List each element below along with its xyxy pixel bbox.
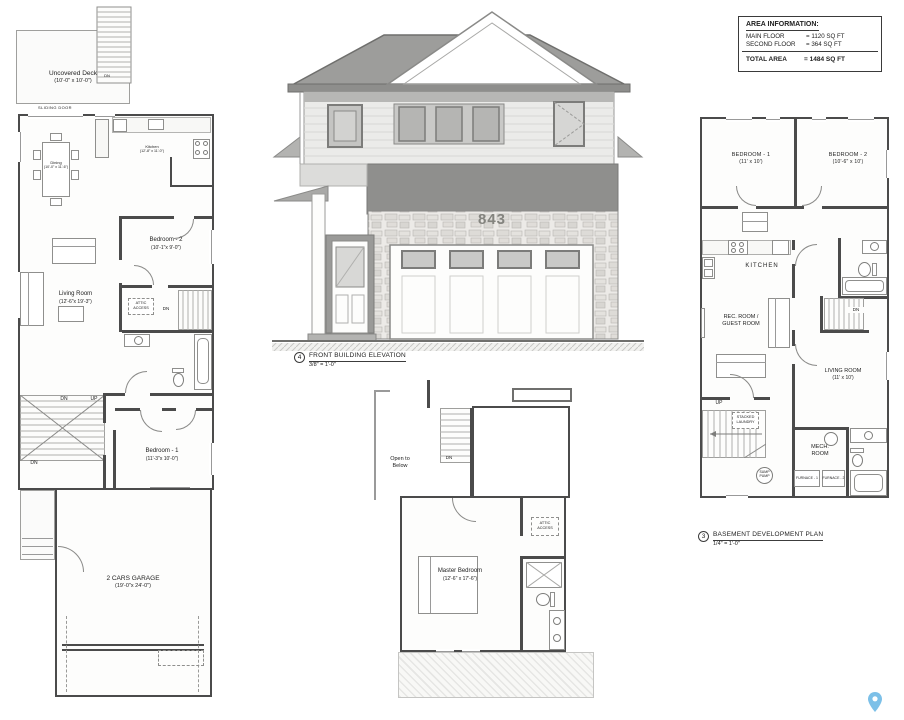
sofa-back-line: [52, 246, 96, 247]
bedroom1-label: Bedroom - 1 (11'-3"x 10'-0"): [113, 448, 211, 462]
kitchen-label: Kitchen (12'-8" x 11'-0"): [128, 144, 176, 153]
vanity: [549, 610, 565, 650]
toilet-bowl: [852, 454, 863, 467]
wall: [754, 397, 770, 400]
burner: [195, 150, 200, 155]
garage-door-track: [66, 616, 67, 692]
hall-dn-label: DN: [158, 306, 174, 312]
wall: [427, 380, 430, 408]
shower: [526, 562, 562, 588]
sofa-back-line: [716, 362, 766, 363]
house-number: 843: [470, 211, 514, 230]
front-elevation-drawing: [272, 5, 644, 351]
toilet-bowl: [536, 593, 550, 606]
basement-bedroom2-label: BEDROOM - 2 (10'-6" x 10'): [810, 152, 886, 165]
burner: [731, 248, 736, 253]
wall: [520, 496, 523, 536]
wall: [756, 206, 804, 209]
window: [726, 493, 748, 498]
master-dims: (12'-6" x 17'-6"): [408, 576, 512, 582]
map-pin-icon[interactable]: [868, 692, 882, 712]
bedroom2-label: Bedroom - 2 (10'-1"x 9'-0"): [120, 237, 212, 251]
bed-pillow-line: [430, 557, 431, 613]
wall: [794, 119, 797, 207]
sliding-door-label: SLIDING DOOR: [26, 105, 84, 110]
basement-dn-label: DN: [848, 307, 864, 313]
wall: [115, 408, 140, 411]
sofa: [768, 298, 790, 348]
laundry-line2: LAUNDRY: [732, 420, 759, 425]
master-bedroom-label: Master Bedroom (12'-6" x 17'-6"): [408, 568, 512, 582]
bathtub-inner: [854, 474, 883, 492]
wall: [170, 185, 212, 187]
toilet-bowl: [173, 373, 184, 387]
elevation-title: FRONT BUILDING ELEVATION: [309, 352, 406, 362]
bedroom2-name: BEDROOM - 2: [810, 152, 886, 159]
burner: [739, 242, 744, 247]
kitchen-island: [95, 119, 109, 158]
wall: [822, 206, 889, 209]
second-floor-dn-label: DN: [440, 455, 458, 461]
furnace-2-label: FURNACE - 2: [822, 476, 845, 480]
sump-line2: PUMP: [756, 474, 773, 478]
kitchen-sink: [148, 119, 164, 130]
bathtub-inner: [197, 338, 209, 384]
sofa: [716, 354, 766, 378]
toilet-tank: [872, 263, 877, 276]
burner: [739, 248, 744, 253]
area-row-second-label: SECOND FLOOR: [746, 41, 796, 49]
bedroom2-dims: (10'-1"x 9'-0"): [120, 245, 212, 251]
burner: [195, 141, 200, 146]
basement-plan-scale: 1/4" = 1'-0": [713, 541, 740, 548]
wall: [103, 455, 106, 490]
toilet-tank: [850, 448, 864, 453]
rec-line2: GUEST ROOM: [706, 321, 776, 328]
wall: [170, 157, 172, 187]
bedroom2-dims: (10'-6" x 10'): [810, 159, 886, 165]
wall: [792, 364, 795, 408]
attic-access-label-2f: ATTIC ACCESS: [531, 521, 559, 530]
kitchen-dims: (12'-8" x 11'-0"): [128, 149, 176, 153]
step-line: [22, 538, 53, 539]
window: [766, 117, 780, 122]
entry-steps: [20, 490, 55, 560]
stair-up-label: UP: [86, 396, 102, 402]
deck-stairs-dn-label: DN: [100, 73, 114, 78]
basement-plan-title: BASEMENT DEVELOPMENT PLAN: [713, 531, 823, 541]
stair-dn2-label: DN: [26, 460, 42, 466]
garage-dims: (19'-0"x 24'-0"): [74, 583, 192, 590]
area-row-main-label: MAIN FLOOR: [746, 33, 785, 41]
sink: [553, 617, 561, 625]
wall: [194, 216, 214, 219]
water-heater: [824, 432, 838, 446]
bed: [418, 556, 478, 614]
floor-plan-sheet: { "colors": {"pin": "#7cc0e8", "wall": "…: [0, 0, 904, 720]
mech-room-label: MECH. ROOM: [798, 444, 842, 458]
wall: [792, 264, 795, 298]
sink-basin: [704, 259, 713, 267]
wall: [792, 240, 795, 250]
sofa: [52, 238, 96, 264]
living-dims: (11' x 10'): [810, 375, 876, 381]
stacked-laundry-label: STACKED LAUNDRY: [732, 415, 759, 424]
chair: [71, 170, 79, 180]
open-area-wall: [374, 390, 376, 500]
wall: [119, 285, 152, 288]
chair: [33, 170, 41, 180]
window: [28, 114, 83, 119]
mech-line1: MECH.: [798, 444, 842, 451]
area-row-main-value: = 1120 SQ FT: [806, 33, 845, 41]
sump-pump-label: SUMP PUMP: [756, 470, 773, 478]
burner: [731, 242, 736, 247]
fridge: [113, 119, 127, 132]
burner: [203, 150, 208, 155]
stair-dn-label: DN: [56, 396, 72, 402]
attic-access-label: ATTIC ACCESS: [128, 301, 154, 310]
sink: [553, 634, 561, 642]
mech-line2: ROOM: [798, 451, 842, 458]
dining-label: Dining (10'-0" x 11'-6"): [38, 160, 74, 169]
coffee-table: [58, 306, 84, 322]
chair: [50, 198, 62, 206]
bedroom1-name: Bedroom - 1: [113, 448, 211, 456]
area-box-divider: [742, 51, 878, 52]
wall: [119, 216, 174, 219]
main-stairs: [20, 395, 105, 461]
attic-line2: ACCESS: [531, 526, 559, 531]
garage-door-header: [62, 644, 204, 646]
wall: [520, 558, 523, 652]
sink-basin: [704, 269, 713, 277]
elevation-scale: 3/8" = 1'-0": [309, 362, 336, 369]
wall: [820, 330, 869, 333]
wall: [520, 556, 566, 559]
step-line: [22, 554, 53, 555]
sink: [134, 336, 143, 345]
dining-table: [42, 142, 70, 197]
window: [18, 132, 23, 162]
wall: [103, 393, 106, 423]
bedroom2-name: Bedroom - 2: [120, 237, 212, 245]
basement-dn-stairs: [824, 298, 864, 330]
rec-line1: REC. ROOM /: [706, 314, 776, 321]
garage-door-travel: [158, 650, 204, 666]
sink: [864, 431, 873, 440]
garage-name: 2 CARS GARAGE: [74, 575, 192, 583]
area-information-title: AREA INFORMATION:: [746, 21, 819, 31]
wall: [792, 427, 848, 430]
living-dims: (12'-6"x 19'-3"): [28, 299, 123, 305]
wall: [846, 427, 849, 498]
master-name: Master Bedroom: [408, 568, 512, 576]
living-name: LIVING ROOM: [810, 368, 876, 375]
wall: [702, 206, 738, 209]
open-area-wall: [374, 390, 390, 392]
open-line1: Open to: [378, 456, 422, 463]
basement-kitchen-label: KITCHEN: [736, 263, 788, 271]
bedroom1-dims: (11' x 10'): [712, 159, 790, 165]
toilet-tank: [550, 592, 555, 607]
window: [848, 117, 874, 122]
window: [726, 117, 752, 122]
wall: [162, 408, 176, 411]
basement-living-label: LIVING ROOM (11' x 10'): [810, 368, 876, 381]
basement-callout-circle: 3: [698, 531, 709, 542]
window: [884, 352, 889, 380]
sofa-back-line: [775, 298, 776, 348]
chair: [50, 133, 62, 141]
step-line: [22, 546, 53, 547]
railing: [512, 388, 572, 402]
closet-rod-line: [742, 221, 768, 222]
open-to-below-label: Open to Below: [378, 456, 422, 470]
wall: [820, 296, 823, 332]
wall: [122, 330, 214, 333]
bedroom1-name: BEDROOM - 1: [712, 152, 790, 159]
open-line2: Below: [378, 463, 422, 470]
toilet-bowl: [858, 262, 871, 277]
wall: [105, 393, 125, 396]
furnace-1-label: FURNACE - 1: [794, 476, 820, 480]
basement-up-label: UP: [710, 400, 728, 406]
wall: [196, 408, 214, 411]
sink: [870, 242, 879, 251]
dining-dims: (10'-0" x 11'-6"): [38, 165, 74, 169]
open-shaft: [472, 406, 570, 498]
basement-stair-run: [178, 290, 212, 330]
living-room-label: Living Room (12'-6"x 19'-3"): [28, 291, 123, 305]
fridge: [772, 240, 789, 255]
area-total-value: = 1484 SQ FT: [804, 56, 845, 64]
wall: [168, 285, 214, 288]
area-row-second-value: = 364 SQ FT: [806, 41, 842, 49]
rec-room-label: REC. ROOM / GUEST ROOM: [706, 314, 776, 328]
wall: [838, 238, 841, 298]
bathtub-inner: [845, 280, 884, 292]
tv-unit: [701, 308, 705, 338]
elevation-callout-circle: 4: [294, 352, 305, 363]
chair: [33, 150, 41, 160]
garage-label: 2 CARS GARAGE (19'-0"x 24'-0"): [74, 575, 192, 590]
wall: [150, 393, 214, 396]
roof-below-hatch: [398, 652, 594, 698]
area-total-label: TOTAL AREA: [746, 56, 787, 64]
bedroom1-dims: (11'-3"x 10'-0"): [113, 456, 211, 462]
living-name: Living Room: [28, 291, 123, 299]
chair: [71, 150, 79, 160]
basement-bedroom1-label: BEDROOM - 1 (11' x 10'): [712, 152, 790, 165]
hall-closet: [742, 212, 768, 232]
burner: [203, 141, 208, 146]
attic-line2: ACCESS: [128, 306, 154, 311]
window: [812, 117, 826, 122]
